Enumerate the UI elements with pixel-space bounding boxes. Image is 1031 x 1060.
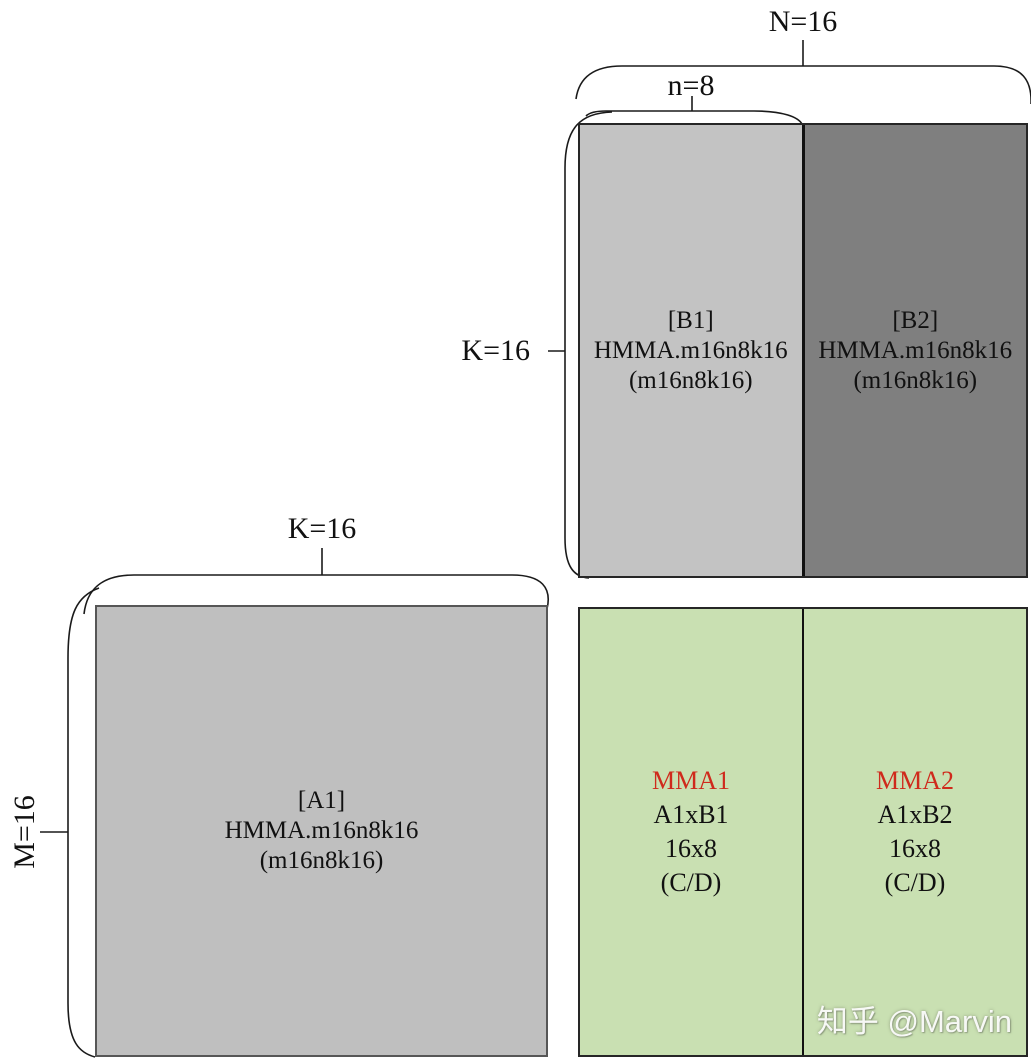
mma1-operands: A1xB1 — [653, 798, 728, 832]
mma2-operands: A1xB2 — [877, 798, 952, 832]
watermark: 知乎 @Marvin — [817, 996, 1012, 1041]
mma2-shape: 16x8 — [889, 832, 941, 866]
b2-instruction: HMMA.m16n8k16 — [818, 336, 1012, 366]
mma1-title: MMA1 — [652, 764, 730, 798]
b1-shape: (m16n8k16) — [629, 366, 753, 396]
matrix-a1-tile: [A1] HMMA.m16n8k16 (m16n8k16) — [95, 605, 548, 1057]
matrix-b2-tile: [B2] HMMA.m16n8k16 (m16n8k16) — [802, 125, 1027, 576]
result-matrix: MMA1 A1xB1 16x8 (C/D) MMA2 A1xB2 16x8 (C… — [578, 607, 1028, 1057]
b2-shape: (m16n8k16) — [853, 366, 977, 396]
label-m16: M=16 — [8, 732, 42, 932]
b2-name: [B2] — [892, 306, 938, 336]
mma1-accumulator: (C/D) — [661, 866, 722, 900]
label-k16-b: K=16 — [380, 334, 530, 368]
label-n16: N=16 — [703, 5, 903, 39]
label-k16-a: K=16 — [222, 512, 422, 546]
hmma-tiling-diagram: N=16 n=8 K=16 K=16 M=16 [B1] HMMA.m16n8k… — [0, 0, 1031, 1060]
matrix-b1-tile: [B1] HMMA.m16n8k16 (m16n8k16) — [580, 125, 802, 576]
mma1-shape: 16x8 — [665, 832, 717, 866]
label-n8: n=8 — [641, 69, 741, 103]
a1-shape: (m16n8k16) — [260, 846, 384, 876]
b1-name: [B1] — [668, 306, 714, 336]
mma2-accumulator: (C/D) — [885, 866, 946, 900]
a1-name: [A1] — [298, 786, 345, 816]
result-mma2-tile: MMA2 A1xB2 16x8 (C/D) — [802, 609, 1026, 1055]
mma2-title: MMA2 — [876, 764, 954, 798]
a1-instruction: HMMA.m16n8k16 — [225, 816, 419, 846]
b1-instruction: HMMA.m16n8k16 — [594, 336, 788, 366]
result-mma1-tile: MMA1 A1xB1 16x8 (C/D) — [580, 609, 802, 1055]
matrix-b: [B1] HMMA.m16n8k16 (m16n8k16) [B2] HMMA.… — [578, 123, 1028, 578]
